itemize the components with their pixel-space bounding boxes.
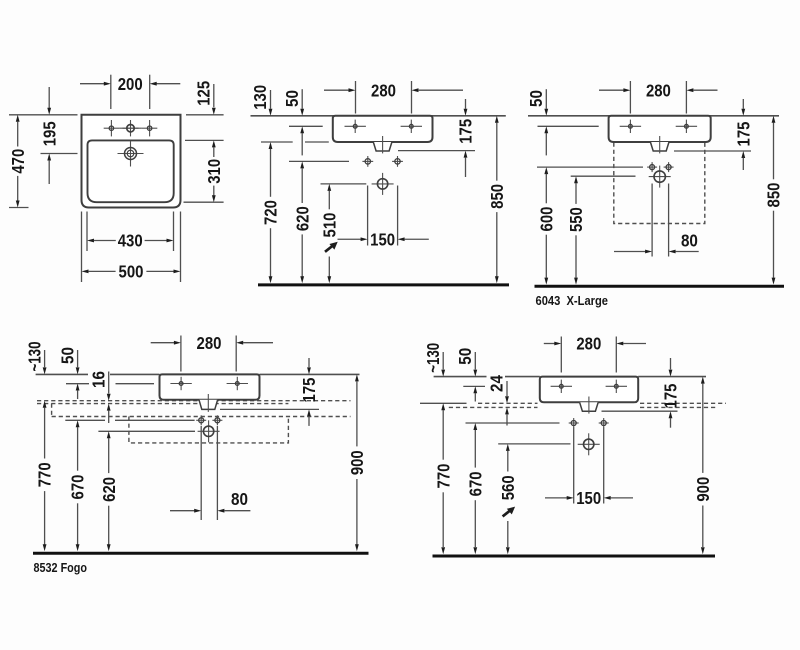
svg-text:50: 50 [526,90,546,107]
svg-text:125: 125 [194,81,214,106]
svg-text:150: 150 [370,229,395,249]
svg-text:280: 280 [646,80,671,100]
svg-text:175: 175 [299,377,319,402]
svg-text:600: 600 [536,206,556,231]
svg-text:470: 470 [8,149,28,174]
svg-text:720: 720 [261,200,281,225]
svg-text:175: 175 [661,383,681,408]
svg-text:900: 900 [693,477,713,502]
svg-text:~130: ~130 [24,341,44,371]
svg-text:850: 850 [487,184,507,209]
svg-text:80: 80 [681,230,698,250]
svg-text:280: 280 [197,333,222,353]
svg-text:620: 620 [292,206,312,231]
svg-text:175: 175 [456,119,476,144]
svg-text:430: 430 [118,231,143,251]
svg-text:195: 195 [39,121,59,146]
svg-text:24: 24 [487,375,507,392]
svg-text:900: 900 [347,450,367,475]
svg-text:130: 130 [250,85,270,110]
svg-text:770: 770 [35,462,55,487]
svg-text:200: 200 [118,74,143,94]
svg-text:510: 510 [319,212,339,237]
svg-text:550: 550 [566,207,586,232]
svg-text:175: 175 [733,121,753,146]
svg-text:670: 670 [465,471,485,496]
svg-text:6043 X-Large: 6043 X-Large [536,294,609,308]
svg-text:310: 310 [204,159,224,184]
svg-text:770: 770 [433,463,453,488]
svg-text:150: 150 [576,488,601,508]
svg-text:50: 50 [282,90,302,107]
svg-text:16: 16 [88,371,108,388]
svg-text:500: 500 [119,262,144,282]
svg-text:8532 Fogo: 8532 Fogo [34,560,88,575]
svg-text:280: 280 [576,334,601,354]
svg-text:850: 850 [764,182,784,207]
svg-text:670: 670 [68,474,88,499]
svg-text:80: 80 [231,489,248,509]
svg-text:560: 560 [498,475,518,500]
svg-text:620: 620 [99,477,119,502]
svg-text:50: 50 [455,348,475,365]
svg-text:280: 280 [371,80,396,100]
svg-text:50: 50 [57,347,77,364]
svg-text:~130: ~130 [423,343,443,373]
